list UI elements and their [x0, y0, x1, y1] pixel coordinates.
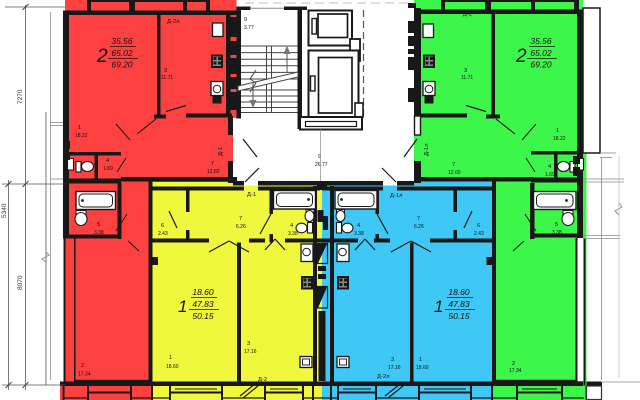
- svg-text:6.26: 6.26: [414, 224, 424, 230]
- svg-text:18.60: 18.60: [448, 287, 470, 297]
- svg-text:2: 2: [81, 363, 84, 369]
- svg-text:7270: 7270: [17, 89, 24, 104]
- svg-text:3.77: 3.77: [244, 25, 254, 31]
- svg-text:5: 5: [555, 222, 558, 228]
- svg-text:35.56: 35.56: [530, 36, 552, 46]
- svg-text:69.20: 69.20: [530, 60, 552, 70]
- svg-text:18.60: 18.60: [416, 365, 429, 371]
- svg-text:3.38: 3.38: [552, 230, 562, 236]
- svg-text:26.77: 26.77: [315, 162, 328, 168]
- svg-text:7: 7: [452, 162, 455, 168]
- svg-text:3.38: 3.38: [354, 231, 364, 237]
- svg-text:9: 9: [244, 17, 247, 23]
- svg-text:50.15: 50.15: [448, 311, 470, 321]
- svg-text:2: 2: [96, 46, 108, 67]
- svg-text:18.60: 18.60: [166, 364, 179, 370]
- svg-text:1.69: 1.69: [103, 166, 113, 172]
- svg-text:Д-1л: Д-1л: [390, 193, 402, 199]
- svg-text:Д-1л: Д-1л: [424, 144, 430, 156]
- svg-text:1.69: 1.69: [545, 172, 555, 178]
- svg-text:17.34: 17.34: [78, 372, 91, 378]
- svg-text:5: 5: [97, 222, 100, 228]
- svg-text:Д-2л: Д-2л: [377, 374, 389, 380]
- svg-text:Д-2л: Д-2л: [167, 19, 179, 25]
- svg-text:2: 2: [515, 46, 527, 67]
- svg-text:1: 1: [78, 125, 81, 131]
- svg-text:6.26: 6.26: [236, 224, 246, 230]
- svg-text:Д-1: Д-1: [218, 147, 224, 156]
- svg-text:50.15: 50.15: [192, 311, 214, 321]
- svg-text:3: 3: [391, 357, 394, 363]
- svg-text:47.83: 47.83: [448, 299, 470, 309]
- svg-text:18.60: 18.60: [192, 287, 214, 297]
- svg-text:Д-1: Д-1: [247, 192, 256, 198]
- svg-text:3: 3: [247, 341, 250, 347]
- svg-text:12.60: 12.60: [207, 169, 220, 175]
- svg-text:11.71: 11.71: [461, 75, 473, 81]
- svg-text:35.56: 35.56: [111, 36, 133, 46]
- svg-text:4: 4: [106, 158, 109, 164]
- svg-text:6: 6: [477, 223, 480, 229]
- svg-text:12.60: 12.60: [448, 170, 461, 176]
- svg-text:18.22: 18.22: [75, 133, 88, 139]
- svg-text:17.16: 17.16: [244, 349, 257, 355]
- svg-text:11.71: 11.71: [161, 75, 173, 81]
- svg-text:1: 1: [169, 355, 172, 361]
- svg-text:3: 3: [164, 68, 167, 74]
- svg-text:8070: 8070: [17, 275, 24, 290]
- svg-text:7: 7: [211, 161, 214, 167]
- svg-text:4: 4: [357, 223, 360, 229]
- svg-text:2: 2: [512, 361, 515, 367]
- svg-text:1: 1: [556, 128, 559, 134]
- svg-text:1: 1: [419, 357, 422, 363]
- svg-text:65.02: 65.02: [530, 48, 552, 58]
- svg-text:7: 7: [239, 216, 242, 222]
- svg-text:17.34: 17.34: [509, 368, 522, 374]
- svg-text:7: 7: [417, 216, 420, 222]
- svg-text:65.02: 65.02: [111, 48, 133, 58]
- svg-text:2.43: 2.43: [474, 231, 484, 237]
- svg-text:69.20: 69.20: [111, 60, 133, 70]
- svg-text:Д-2: Д-2: [258, 377, 267, 383]
- svg-text:6: 6: [161, 223, 164, 229]
- svg-text:4: 4: [290, 223, 293, 229]
- svg-text:4: 4: [548, 164, 551, 170]
- svg-text:1: 1: [434, 297, 443, 316]
- svg-text:2.43: 2.43: [158, 231, 168, 237]
- svg-text:3: 3: [464, 68, 467, 74]
- svg-text:3.38: 3.38: [94, 230, 104, 236]
- svg-text:3.38: 3.38: [288, 231, 298, 237]
- svg-text:1: 1: [178, 297, 187, 316]
- svg-text:18.22: 18.22: [553, 136, 566, 142]
- svg-text:Д-2: Д-2: [463, 11, 472, 17]
- svg-text:5340: 5340: [1, 203, 8, 218]
- svg-text:17.16: 17.16: [388, 365, 401, 371]
- svg-text:47.83: 47.83: [192, 299, 214, 309]
